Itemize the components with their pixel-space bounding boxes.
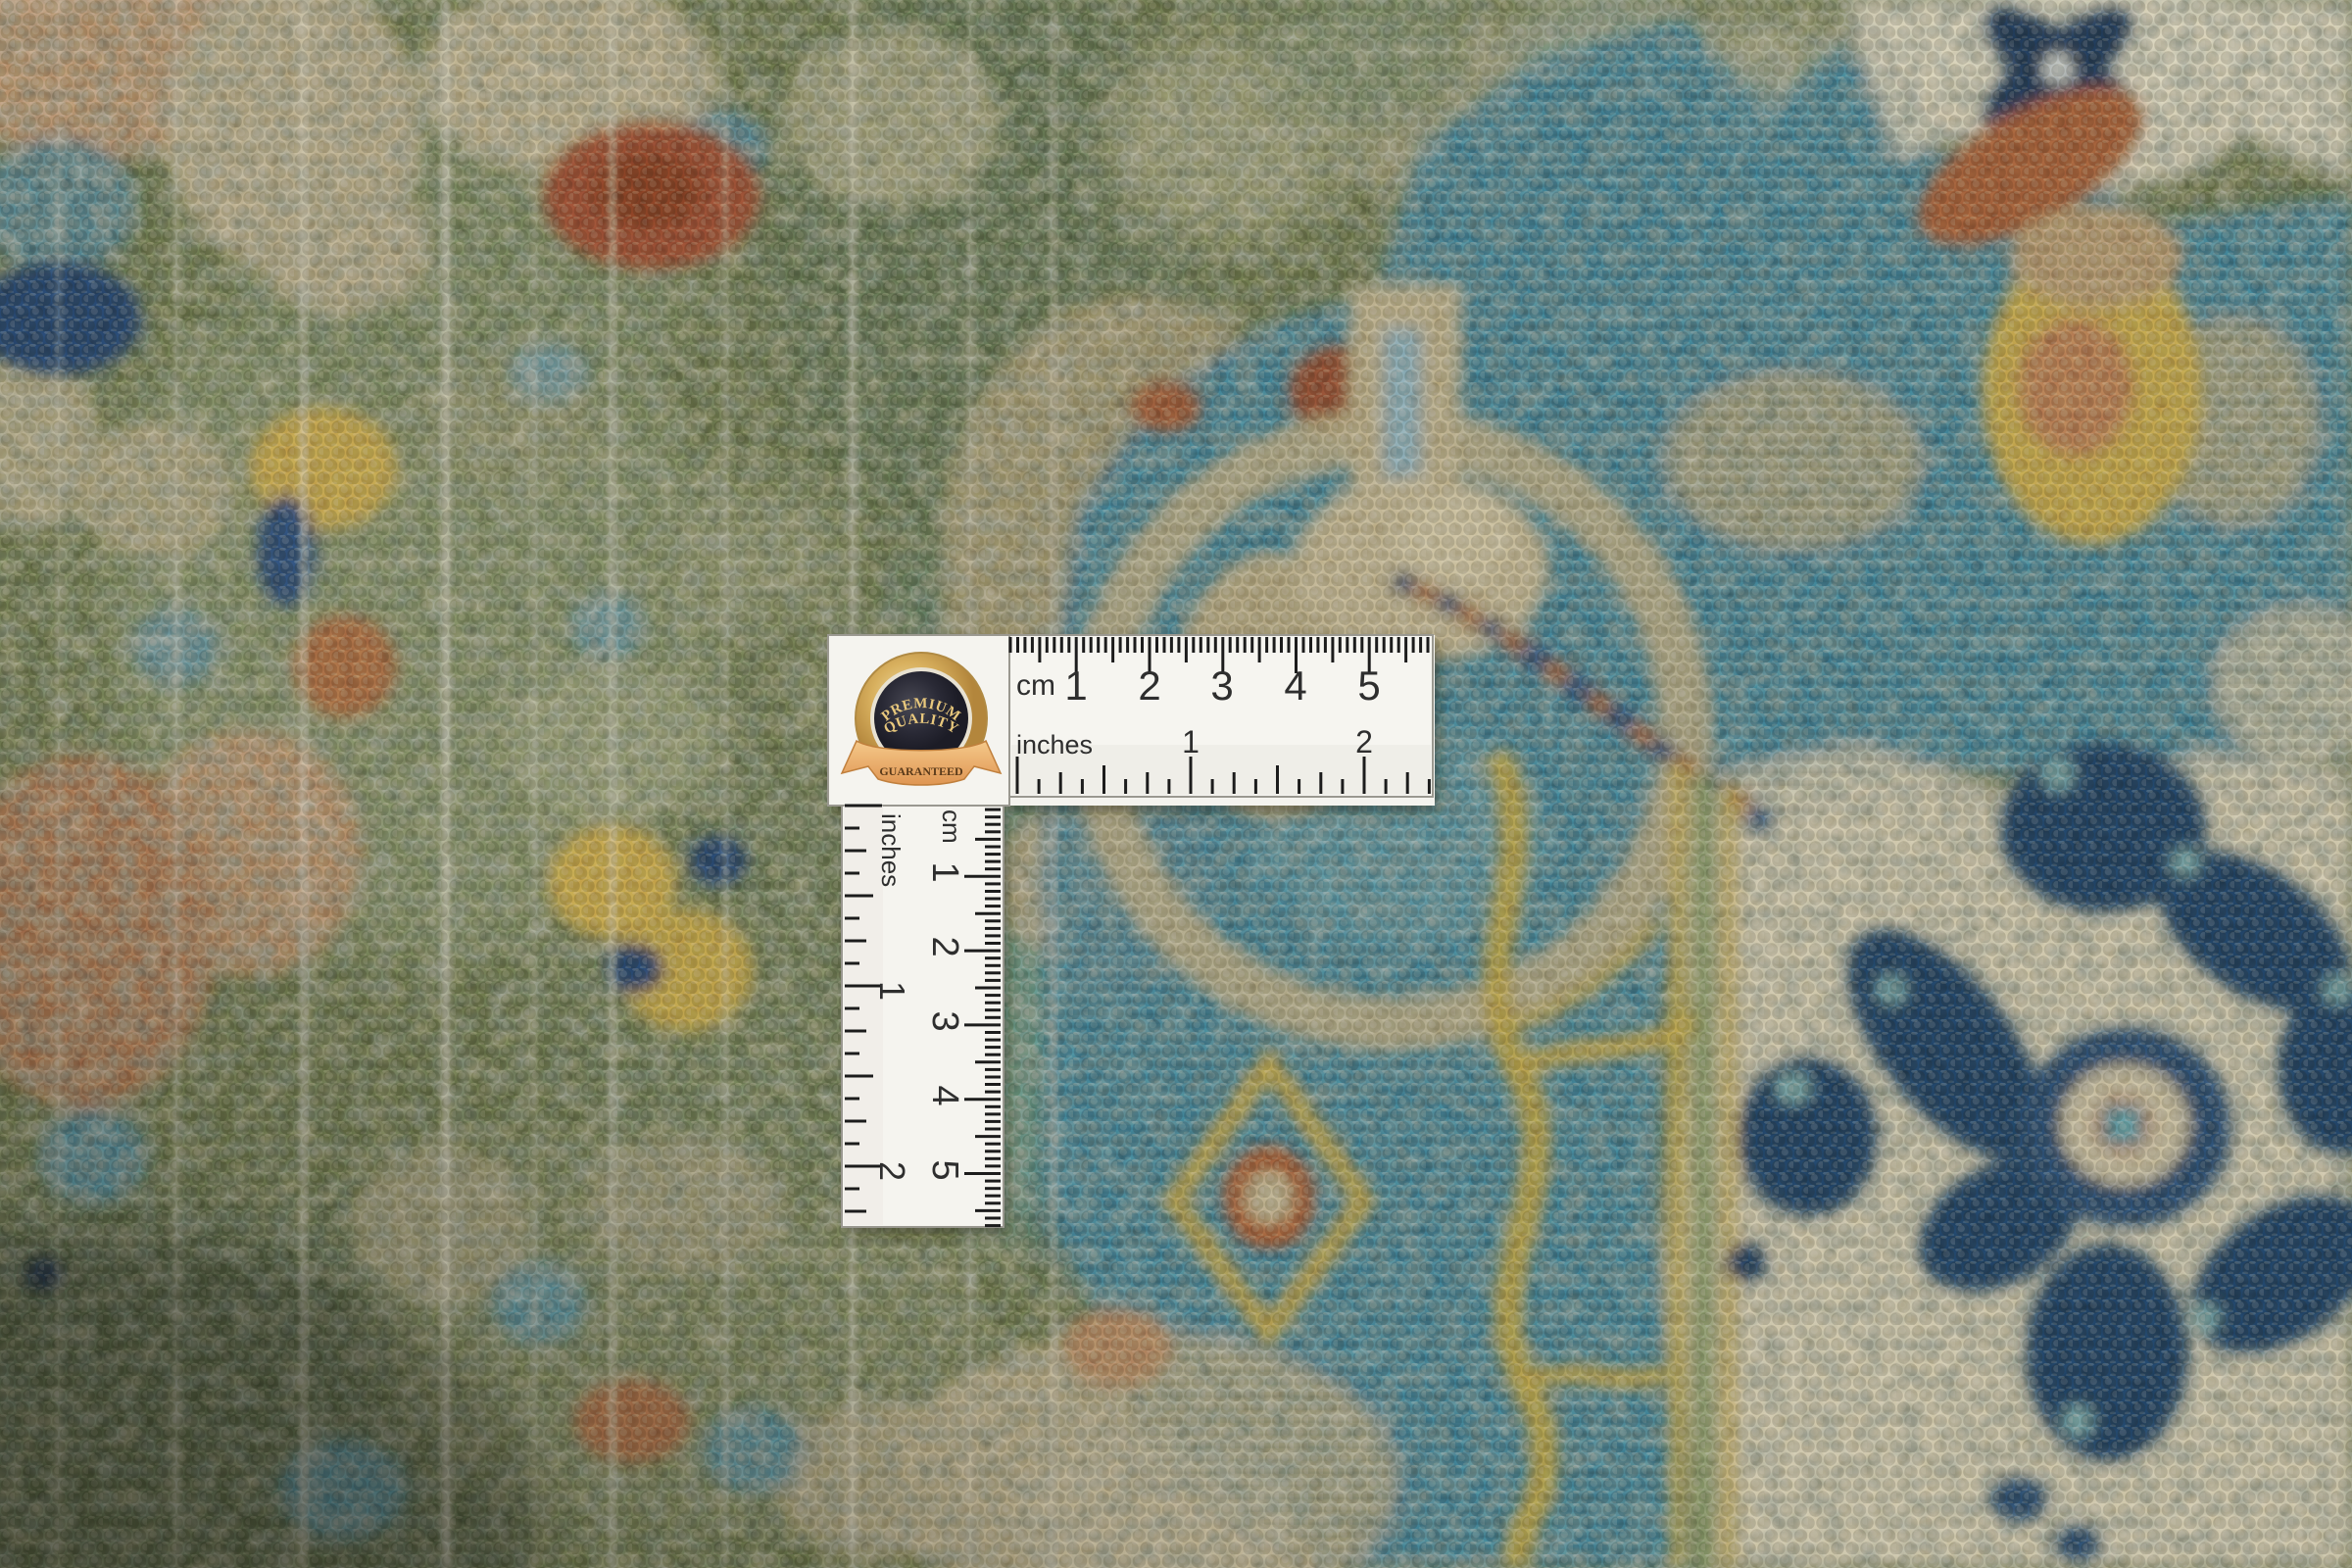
svg-text:inches: inches — [876, 813, 906, 887]
svg-text:inches: inches — [1016, 730, 1093, 759]
svg-text:2: 2 — [872, 1161, 912, 1181]
svg-text:2: 2 — [1138, 662, 1160, 709]
svg-text:4: 4 — [924, 1085, 965, 1105]
svg-text:4: 4 — [1284, 662, 1306, 709]
svg-text:cm: cm — [1016, 669, 1055, 702]
svg-text:3: 3 — [1210, 662, 1233, 709]
svg-text:1: 1 — [872, 981, 912, 1001]
svg-text:GUARANTEED: GUARANTEED — [879, 764, 963, 778]
svg-text:1: 1 — [1064, 662, 1087, 709]
svg-text:1: 1 — [924, 861, 965, 882]
svg-text:2: 2 — [1355, 724, 1373, 759]
svg-text:5: 5 — [1357, 662, 1380, 709]
svg-text:3: 3 — [924, 1010, 965, 1031]
svg-text:cm: cm — [937, 809, 966, 844]
svg-text:5: 5 — [924, 1159, 965, 1180]
svg-text:1: 1 — [1182, 724, 1200, 759]
svg-text:2: 2 — [924, 936, 965, 956]
